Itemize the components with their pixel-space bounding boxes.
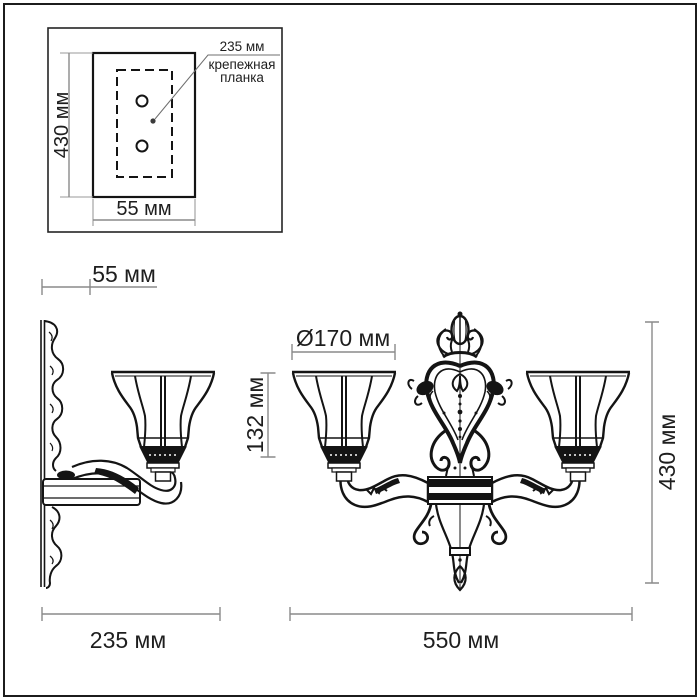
front-left-shade bbox=[292, 372, 396, 481]
inset-width-label: 55 мм bbox=[116, 198, 171, 220]
diameter-label: Ø170 мм bbox=[296, 325, 390, 351]
front-view bbox=[292, 312, 630, 591]
shade-height-label: 132 мм bbox=[242, 377, 268, 453]
callout-dot bbox=[150, 118, 155, 123]
inset-width-dimension: 55 мм bbox=[93, 198, 195, 226]
backplate-outline bbox=[93, 53, 195, 197]
callout-value-label: 235 мм bbox=[220, 39, 265, 54]
side-width-dimension: 235 мм bbox=[42, 607, 220, 653]
mounting-plate-inset: 430 мм 55 мм 235 мм крепежная планка bbox=[48, 28, 282, 232]
depth-label: 55 мм bbox=[92, 261, 156, 287]
side-shade bbox=[111, 372, 215, 481]
front-width-dimension: 550 мм bbox=[290, 607, 632, 653]
side-view bbox=[41, 320, 215, 588]
inset-height-label: 430 мм bbox=[51, 92, 73, 158]
total-height-label: 430 мм bbox=[654, 414, 680, 490]
screw-hole-bottom bbox=[137, 141, 148, 152]
backplate-profile bbox=[44, 321, 63, 588]
front-width-label: 550 мм bbox=[423, 627, 499, 653]
callout-name-line2: планка bbox=[220, 70, 264, 85]
shade-height-dimension: 132 мм bbox=[242, 373, 276, 457]
inset-height-dimension: 430 мм bbox=[51, 53, 93, 197]
diameter-dimension: Ø170 мм bbox=[292, 325, 395, 360]
depth-dimension: 55 мм bbox=[42, 261, 157, 295]
front-right-shade bbox=[526, 372, 630, 481]
center-band bbox=[428, 477, 492, 504]
sconce-dimension-diagram: 430 мм 55 мм 235 мм крепежная планка bbox=[0, 0, 700, 700]
side-width-label: 235 мм bbox=[90, 627, 166, 653]
diagram-canvas: 430 мм 55 мм 235 мм крепежная планка bbox=[0, 0, 700, 700]
screw-hole-top bbox=[137, 96, 148, 107]
total-height-dimension: 430 мм bbox=[645, 322, 680, 583]
